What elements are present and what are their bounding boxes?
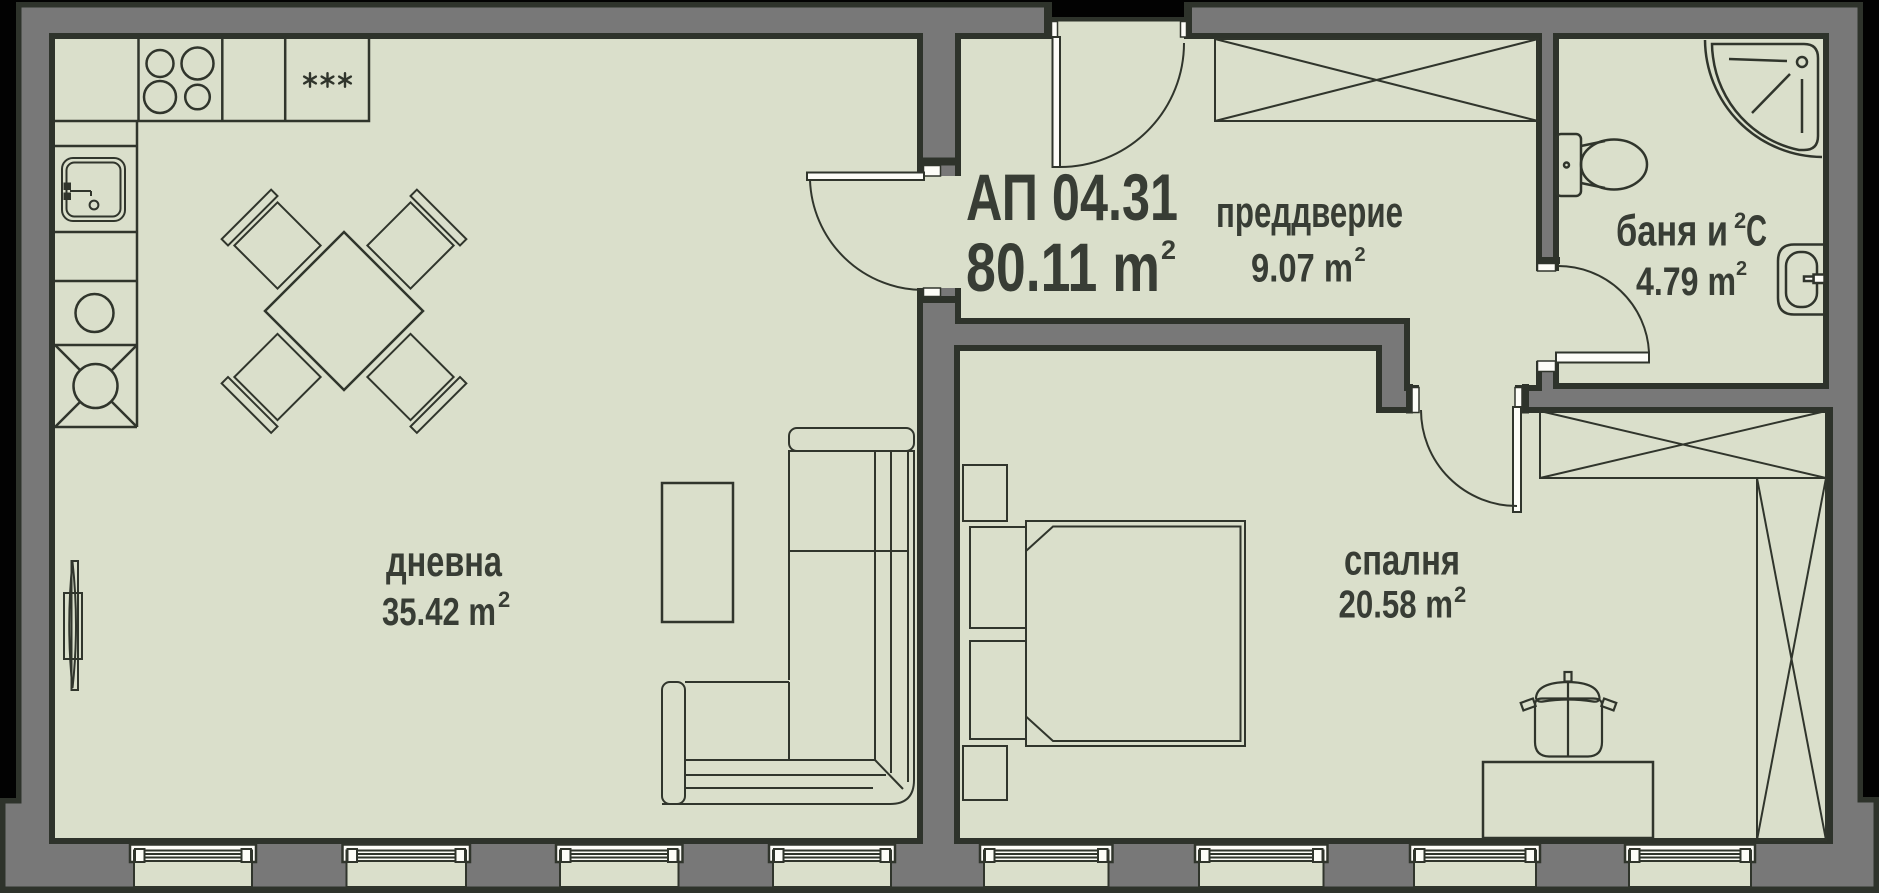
svg-text:2: 2 [1734,208,1746,233]
svg-text:преддверие: преддверие [1216,188,1403,237]
svg-text:дневна: дневна [386,538,503,586]
svg-text:20.58 m: 20.58 m [1339,584,1454,627]
svg-text:C: C [1746,207,1767,256]
svg-text:2: 2 [1736,258,1747,280]
svg-text:80.11 m: 80.11 m [966,229,1160,306]
svg-text:спалня: спалня [1344,537,1460,585]
svg-text:9.07 m: 9.07 m [1251,247,1353,291]
svg-text:2: 2 [1355,244,1366,266]
svg-text:2: 2 [498,587,510,612]
svg-text:баня и: баня и [1616,207,1728,256]
svg-text:2: 2 [1454,582,1466,607]
svg-text:2: 2 [1161,235,1176,265]
svg-text:35.42 m: 35.42 m [382,591,496,634]
svg-text:АП 04.31: АП 04.31 [966,160,1178,234]
svg-text:4.79 m: 4.79 m [1636,260,1736,304]
